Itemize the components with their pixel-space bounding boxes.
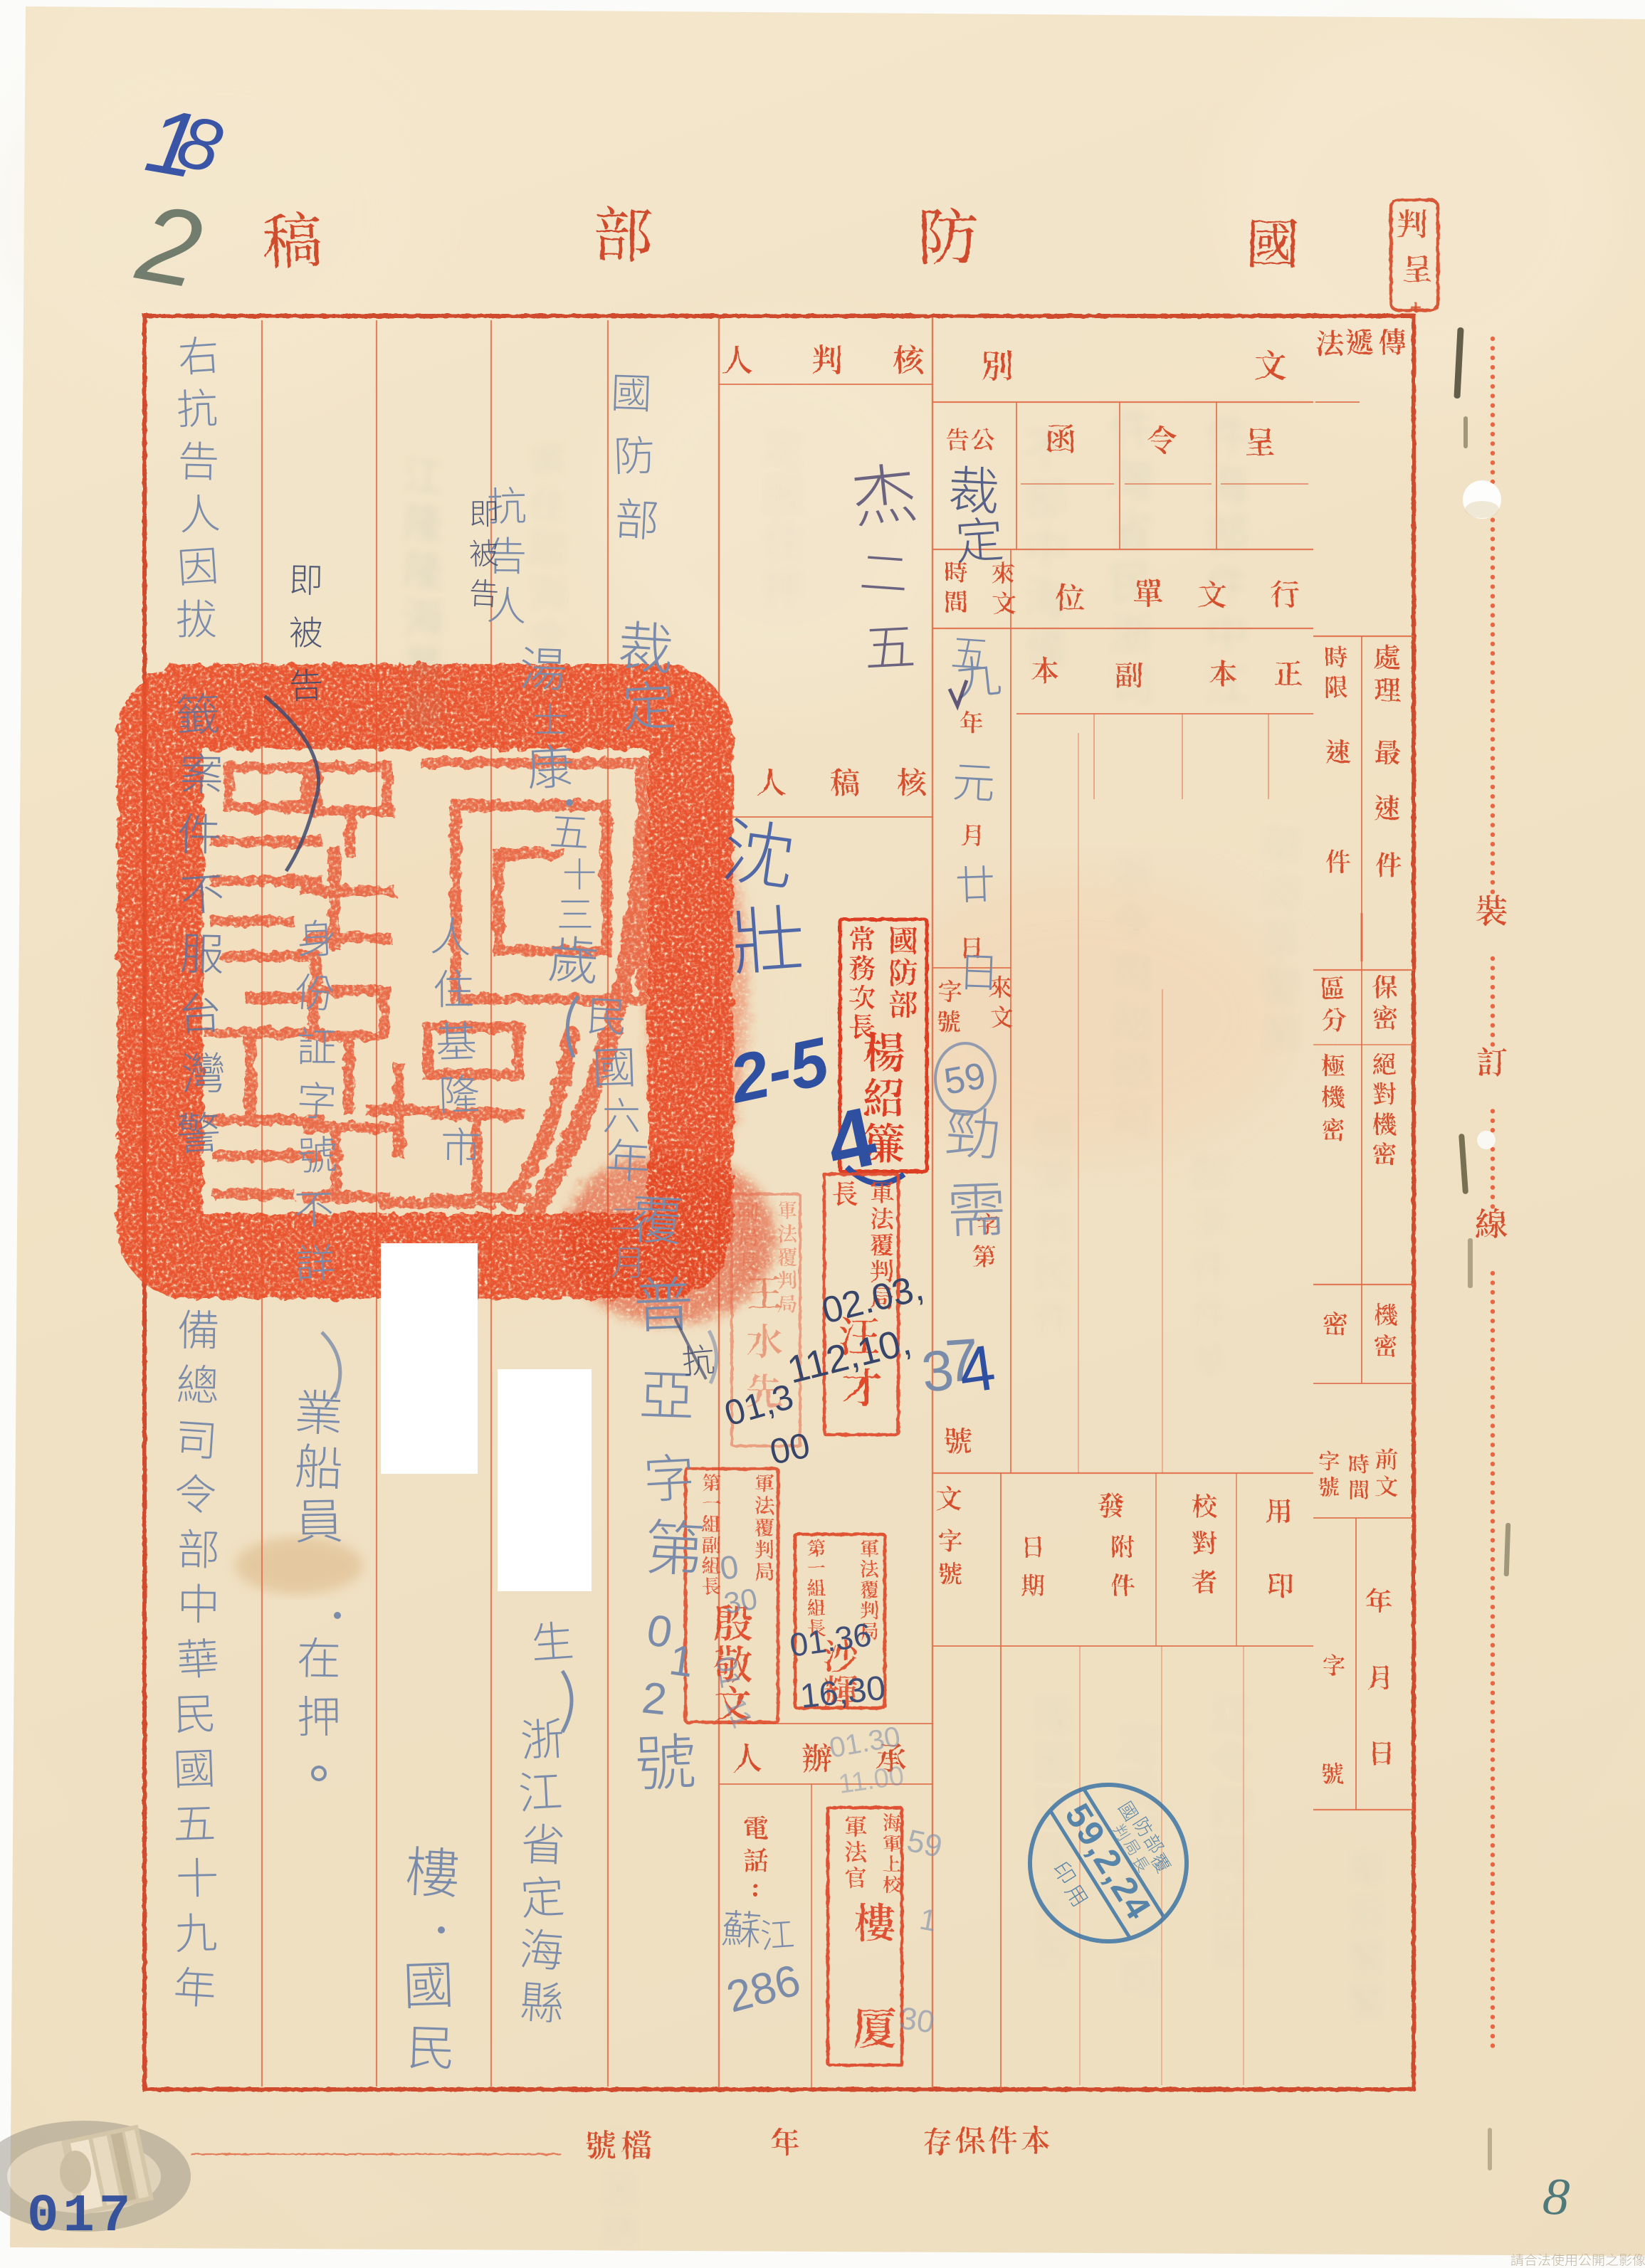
svg-text:2: 2 <box>640 1673 670 1724</box>
svg-text:8: 8 <box>1541 2167 1572 2227</box>
svg-text:01: 01 <box>710 1654 746 1690</box>
svg-text:59: 59 <box>904 1823 945 1864</box>
svg-text:59: 59 <box>941 1055 989 1103</box>
svg-text:30: 30 <box>898 2000 937 2040</box>
svg-text:30: 30 <box>721 1581 760 1620</box>
svg-text:017: 017 <box>27 2187 135 2247</box>
svg-text:00: 00 <box>767 1425 814 1472</box>
